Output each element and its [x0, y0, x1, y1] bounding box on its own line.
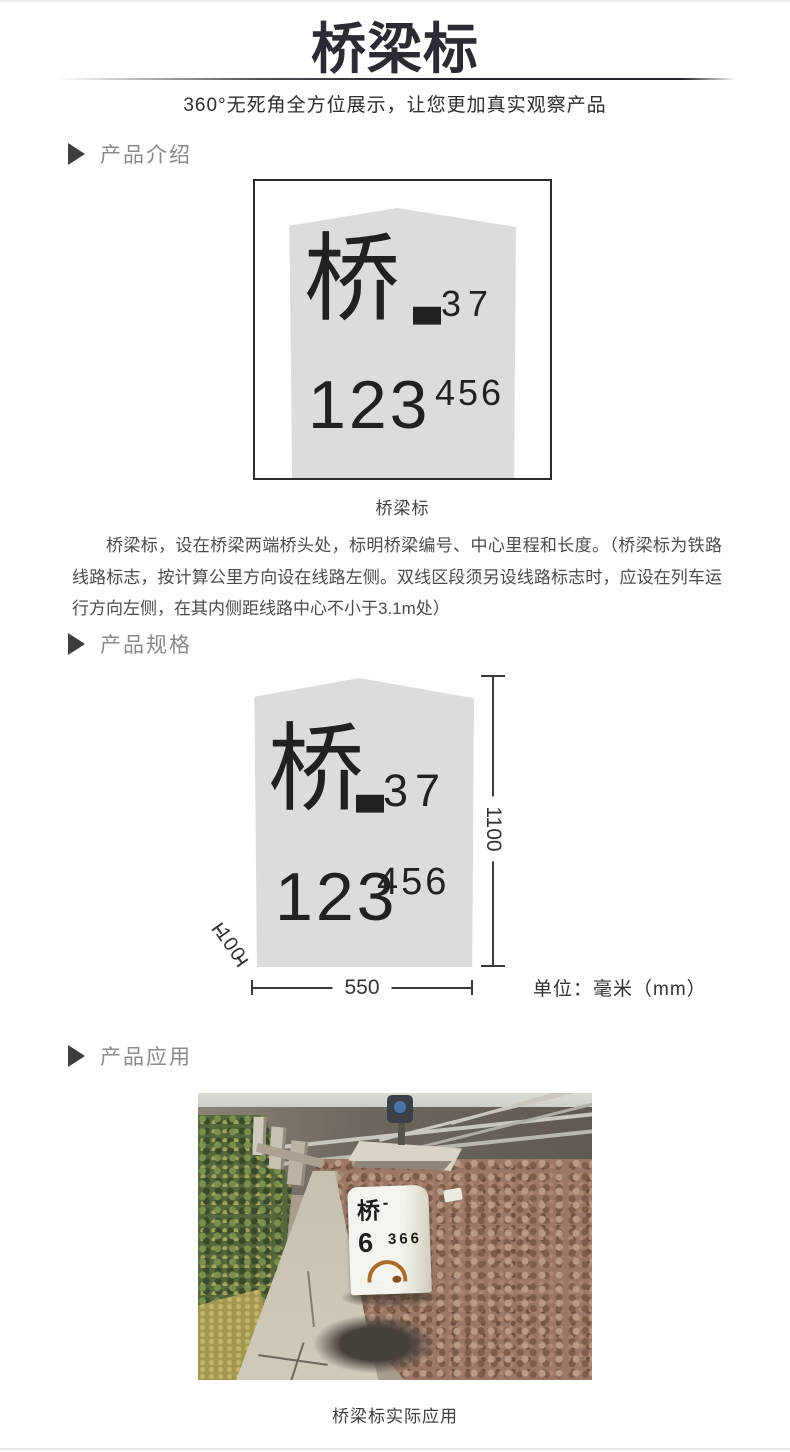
intro-image-caption: 桥梁标 [253, 494, 552, 519]
section-label: 产品应用 [100, 1041, 192, 1071]
unit-label: 单位：毫米（mm） [533, 974, 707, 1001]
triangle-bullet-icon [68, 633, 85, 655]
signal-lens-icon [394, 1101, 406, 1113]
section-header-application: 产品应用 [68, 1043, 192, 1069]
width-dimension-cap-left [251, 980, 253, 995]
marker-mileage-main: 123 [308, 371, 430, 439]
product-description: 桥梁标，设在桥梁两端桥头处，标明桥梁编号、中心里程和长度。（桥梁标为铁路线路标志… [72, 530, 722, 625]
top-border-line [0, 0, 790, 2]
product-detail-page: 桥梁标 360°无死角全方位展示，让您更加真实观察产品 产品介绍 桥 — 37 … [0, 0, 790, 1452]
height-dimension-label: 1100 [479, 796, 507, 861]
stone-rust-dot [392, 1276, 401, 1283]
dimension-tick-icon [211, 922, 223, 931]
page-title: 桥梁标 [0, 18, 790, 80]
photo-mud-patch [314, 1315, 436, 1373]
application-photo-caption: 桥梁标实际应用 [198, 1402, 592, 1427]
stone-number: 6 [358, 1229, 374, 1259]
marker-mileage-sub: 456 [377, 863, 449, 901]
product-image-frame: 桥 — 37 123 456 [253, 179, 552, 480]
bottom-border-line [0, 1448, 790, 1450]
dimension-tick-icon [237, 959, 249, 968]
triangle-bullet-icon [68, 1045, 85, 1067]
photo-marker-stone: 桥 - 6 366 [347, 1185, 432, 1296]
section-header-spec: 产品规格 [68, 631, 192, 657]
section-label: 产品介绍 [100, 139, 192, 169]
triangle-bullet-icon [68, 143, 85, 165]
width-dimension-label: 550 [332, 976, 391, 1000]
height-dimension-cap-bottom [481, 965, 505, 967]
marker-serial-number: 37 [441, 286, 495, 322]
width-dimension-cap-right [471, 980, 473, 995]
stone-number-sub: 366 [388, 1231, 423, 1248]
marker-dash: — [356, 702, 384, 882]
stone-prefix-char: 桥 [357, 1197, 381, 1224]
section-header-intro: 产品介绍 [68, 141, 192, 167]
marker-prefix-char: 桥 [268, 720, 364, 820]
marker-serial-number: 37 [383, 768, 447, 813]
depth-dimension: 100 [207, 919, 252, 970]
stone-dash: - [382, 1194, 388, 1211]
marker-prefix-char: 桥 [304, 230, 400, 330]
marker-mileage-sub: 456 [435, 375, 504, 411]
bridge-marker-illustration: 桥 — 37 123 456 [288, 208, 516, 480]
section-label: 产品规格 [100, 629, 192, 659]
application-photo: 桥 - 6 366 [198, 1093, 592, 1380]
page-subtitle: 360°无死角全方位展示，让您更加真实观察产品 [0, 90, 790, 117]
height-dimension-cap-top [481, 675, 505, 677]
bridge-marker-diagram: 桥 — 37 123 456 [253, 678, 474, 967]
